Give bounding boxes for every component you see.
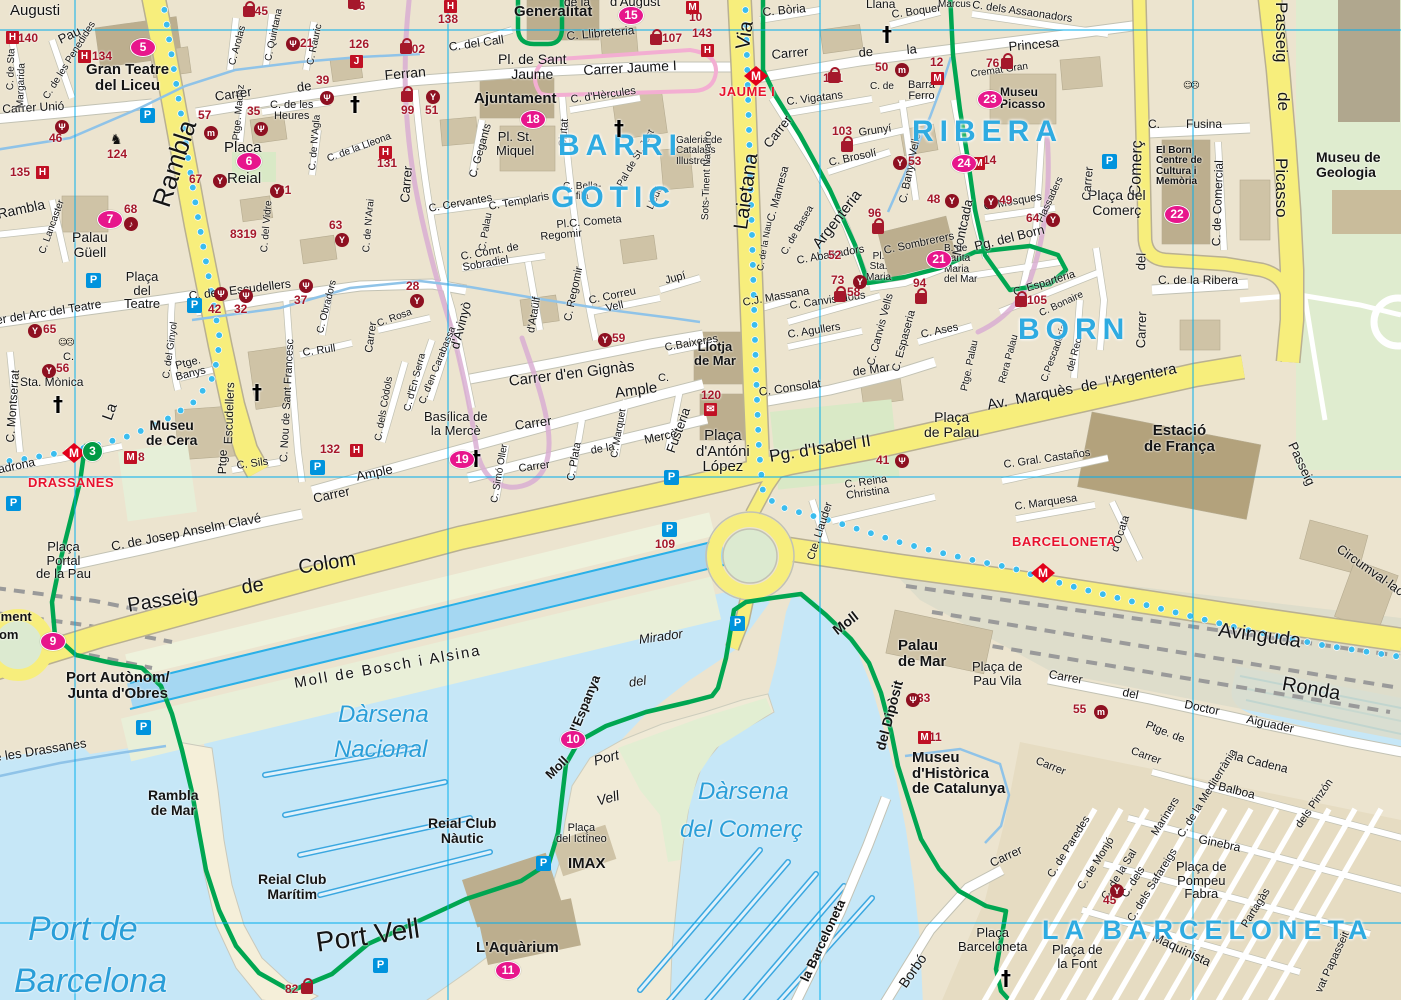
bar-icon: Y bbox=[28, 324, 42, 338]
label-pg-del-born: Pg. del Born bbox=[973, 223, 1046, 253]
label-rambla: Rambla bbox=[148, 117, 201, 211]
label-21: 21 bbox=[300, 37, 313, 49]
shopping-icon bbox=[401, 91, 413, 102]
sight-badge-21: 21 bbox=[926, 250, 952, 269]
sight-badge-15: 15 bbox=[618, 6, 644, 25]
label-port-de: Port de bbox=[28, 912, 138, 947]
label-c-dels-assaonadors: C. dels Assaonadors bbox=[971, 0, 1073, 25]
restaurant-icon: Ψ bbox=[906, 693, 920, 707]
label-67: 67 bbox=[189, 173, 202, 185]
label-de-les-drassanes: de les Drassanes bbox=[0, 736, 87, 765]
label-c-del-vidre: C. del Vidre bbox=[260, 200, 275, 253]
label-76: 76 bbox=[986, 57, 999, 69]
label-c-del-call: C. del Call bbox=[448, 33, 505, 53]
label-de: de bbox=[240, 575, 265, 599]
label-126: 126 bbox=[349, 38, 369, 50]
label-107: 107 bbox=[662, 32, 682, 44]
label-c-de: C. de bbox=[870, 82, 894, 92]
label-120: 120 bbox=[701, 389, 721, 401]
label-c-plata: C. Plata bbox=[566, 441, 584, 482]
label-la: la bbox=[906, 42, 917, 56]
label-rambla: Rambla bbox=[0, 197, 46, 221]
label-63: 63 bbox=[329, 219, 342, 231]
label-49: 49 bbox=[999, 194, 1012, 206]
map-canvas[interactable]: AugustiPauGran Teatre del LiceuCarrer Un… bbox=[0, 0, 1401, 1000]
label-colom: Colom bbox=[0, 628, 18, 642]
parking-icon: P bbox=[662, 522, 677, 537]
label-37: 37 bbox=[294, 294, 307, 306]
fgc-icon: m bbox=[895, 63, 909, 77]
label-c-d'hèrcules: C. d'Hèrcules bbox=[570, 86, 637, 106]
music-venue-icon: ♪ bbox=[124, 217, 138, 231]
label-c-templaris: C. Templaris bbox=[488, 191, 550, 213]
hotel-icon: H bbox=[36, 166, 49, 179]
label-42: 42 bbox=[208, 303, 221, 315]
label-reial-club-nàutic: Reial Club Nàutic bbox=[428, 816, 496, 845]
church-icon: † bbox=[614, 118, 624, 138]
shopping-icon bbox=[872, 223, 884, 234]
restaurant-icon: Ψ bbox=[55, 120, 69, 134]
label-museu-de-cera: Museu de Cera bbox=[146, 418, 197, 447]
label-avinguda: Avinguda bbox=[1217, 620, 1302, 652]
label-sta-mònica: Sta. Mònica bbox=[20, 376, 83, 388]
label-pl-sta-maria: Pl. Sta. Maria bbox=[866, 252, 891, 283]
shopping-icon bbox=[1015, 296, 1027, 307]
label-el-born-centre-de-cultura-i-memòria: El Born Centre de Cultura i Memòria bbox=[1156, 146, 1202, 188]
label-82: 82 bbox=[285, 983, 298, 995]
label-reial: Reial bbox=[227, 171, 261, 187]
label-picasso: Picasso bbox=[1272, 158, 1290, 218]
label-c-nou-de-sant-francesc: C. Nou de Sant Francesc bbox=[279, 339, 297, 463]
label-plaça-de-la-font: Plaça de la Font bbox=[1052, 943, 1103, 970]
label-passeig: Passeig bbox=[1272, 2, 1290, 62]
label-vell: Vell bbox=[595, 788, 621, 808]
label-c-arolas: C. Arolas bbox=[228, 25, 249, 67]
label-carrer: Carrer bbox=[761, 113, 794, 150]
label-grunyí: Grunyí bbox=[858, 123, 892, 139]
label-32: 32 bbox=[234, 303, 247, 315]
label-c-de-les-heures: C. de les Heures bbox=[270, 100, 313, 123]
label-carrer: Carrer bbox=[988, 844, 1024, 870]
label-64: 64 bbox=[1026, 212, 1039, 224]
label-135: 135 bbox=[10, 166, 30, 178]
sight-badge-3: 3 bbox=[82, 441, 103, 462]
label-ginebra: Ginebra bbox=[1197, 833, 1241, 854]
label-c-llibreteria: C. Llibreteria bbox=[566, 24, 635, 42]
label-jupí: Jupí bbox=[664, 271, 687, 287]
label-c-de-n'agla: C. de N'Agla bbox=[308, 114, 323, 171]
sight-badge-7: 7 bbox=[97, 210, 123, 229]
bar-icon: Y bbox=[598, 333, 612, 347]
label-de: de bbox=[296, 79, 312, 94]
label-c-vigatans: C. Vigatans bbox=[786, 90, 844, 108]
label-ptge-palau: Ptge. Palau bbox=[960, 339, 981, 392]
label-c-regomir: C. Regomir bbox=[563, 266, 586, 323]
label-c-comt-de-sobradiel: C. Comt. de Sobradiel bbox=[460, 242, 522, 275]
bar-icon: Y bbox=[1046, 213, 1060, 227]
label-via: Via bbox=[733, 20, 758, 51]
hotel-icon: H bbox=[379, 146, 392, 159]
label-plaça-de-pompeu-fabra: Plaça de Pompeu Fabra bbox=[1176, 860, 1227, 901]
label-laietana: Laietana bbox=[731, 152, 762, 231]
label-c-rull: C. Rull bbox=[302, 343, 336, 359]
label-c-manresa: C. Manresa bbox=[766, 165, 792, 223]
label-pl-de-sant-jaume: Pl. de Sant Jaume bbox=[498, 52, 567, 81]
church-icon: † bbox=[882, 24, 892, 44]
label-la-cadena: la Cadena bbox=[1233, 750, 1289, 775]
label-plaça-del-teatre: Plaça del Teatre bbox=[124, 270, 160, 311]
label-plaça-de-pau-vila: Plaça de Pau Vila bbox=[972, 660, 1023, 687]
label-c-canvis-vells: C. Canvis Vells bbox=[866, 293, 896, 367]
label-carrer: Carrer bbox=[1080, 166, 1095, 201]
label-jaume-i: JAUME I bbox=[719, 85, 775, 99]
shopping-icon bbox=[301, 983, 313, 994]
label-dàrsena: Dàrsena bbox=[698, 780, 789, 805]
label-doctor: Doctor bbox=[1183, 698, 1220, 718]
parking-icon: P bbox=[136, 720, 151, 735]
label-56: 56 bbox=[56, 362, 69, 374]
label-la-barceloneta: la Barceloneta bbox=[798, 897, 848, 983]
label-palau-g-ell: Palau Güell bbox=[72, 230, 108, 259]
label-augusti: Augusti bbox=[10, 3, 60, 19]
sight-badge-24: 24 bbox=[951, 154, 977, 173]
bar-icon: Y bbox=[945, 194, 959, 208]
label-39: 39 bbox=[316, 74, 329, 86]
label-109: 109 bbox=[655, 538, 675, 550]
hotel-icon: H bbox=[78, 50, 91, 63]
label-c-de-n'arai: C. de N'Arai bbox=[362, 199, 377, 253]
label-princesa: Princesa bbox=[1008, 36, 1060, 54]
label-barcelona: Barcelona bbox=[14, 964, 167, 999]
label-l'aquàrium: L'Aquàrium bbox=[476, 940, 559, 956]
bar-icon: Y bbox=[893, 156, 907, 170]
label-carrer: Carrer bbox=[398, 165, 415, 203]
hostel-icon: J bbox=[350, 55, 363, 68]
label-de: de bbox=[858, 45, 874, 60]
sight-badge-19: 19 bbox=[449, 450, 475, 469]
label-c: C. bbox=[1148, 118, 1160, 130]
label-del: del bbox=[1121, 686, 1139, 702]
parking-icon: P bbox=[730, 616, 745, 631]
label-moll-de-bosch-i-alsina: Moll de Bosch i Alsina bbox=[293, 643, 483, 691]
bar-icon: Y bbox=[213, 174, 227, 188]
metro-entrance-icon: M bbox=[124, 451, 137, 464]
label-plaça-del-comerç: Plaça del Comerç bbox=[1088, 188, 1146, 217]
label-ample: Ample bbox=[614, 380, 658, 401]
label-argenteria: Argenteria bbox=[810, 187, 865, 251]
restaurant-icon: Ψ bbox=[299, 279, 313, 293]
label-c-marquesa: C. Marquesa bbox=[1014, 493, 1078, 513]
label-c-reina-christina: C. Reina Christina bbox=[844, 474, 890, 503]
restaurant-icon: Ψ bbox=[254, 122, 268, 136]
bar-icon: Y bbox=[270, 184, 284, 198]
label-55: 55 bbox=[1073, 703, 1086, 715]
label-la: La bbox=[100, 401, 120, 422]
label-c-de-la-nau: C. de la Nau bbox=[756, 221, 774, 272]
label-8319: 8319 bbox=[230, 228, 257, 240]
label-c-consolat: C. Consolat bbox=[758, 377, 822, 398]
label-regomir: Regomir bbox=[540, 228, 582, 243]
shopping-icon bbox=[400, 43, 412, 54]
label-port: Port bbox=[592, 747, 621, 768]
label-28: 28 bbox=[406, 280, 419, 292]
label-c-agullers: C. Agullers bbox=[787, 322, 841, 342]
label-port-autònom-junta-d'obres: Port Autònom/ Junta d'Obres bbox=[66, 670, 170, 701]
label-c-bòria: C. Bòria bbox=[762, 2, 806, 18]
hotel-icon: H bbox=[444, 0, 457, 13]
label-c-rosa: C. Rosa bbox=[376, 308, 414, 330]
label-carrer-jaume-i: Carrer Jaume I bbox=[583, 58, 677, 77]
label-del-dipòsit: del Dipòsit bbox=[873, 679, 906, 752]
shopping-icon bbox=[915, 293, 927, 304]
label-carrer: Carrer bbox=[312, 484, 351, 505]
heraldic-icon: ♞ bbox=[110, 133, 123, 147]
labels-layer: AugustiPauGran Teatre del LiceuCarrer Un… bbox=[0, 0, 1401, 1000]
parking-icon: P bbox=[86, 273, 101, 288]
restaurant-icon: Ψ bbox=[895, 454, 909, 468]
label-12: 12 bbox=[930, 56, 943, 68]
label-52: 52 bbox=[828, 249, 841, 261]
label-cte-llauder: Cte. Llauder bbox=[806, 501, 835, 562]
label-carrer: Carrer bbox=[514, 414, 552, 433]
label-balboa: Balboa bbox=[1217, 780, 1256, 801]
bar-icon: Y bbox=[853, 275, 867, 289]
bar-icon: Y bbox=[42, 364, 56, 378]
theatre-masks-icon: ☺☹ bbox=[1183, 82, 1198, 91]
theatre-masks-icon: ☺☹ bbox=[58, 339, 73, 348]
label-pl-st-miquel: Pl. St. Miquel bbox=[496, 130, 534, 157]
parking-icon: P bbox=[6, 496, 21, 511]
sight-badge-9: 9 bbox=[40, 632, 66, 651]
parking-icon: P bbox=[310, 460, 325, 475]
sight-badge-22: 22 bbox=[1164, 205, 1190, 224]
fgc-icon: m bbox=[1094, 705, 1108, 719]
label-14: 14 bbox=[983, 154, 996, 166]
label-av-marquès-de-l'argentera: Av. Marquès de l'Argentera bbox=[986, 361, 1178, 413]
label-65: 65 bbox=[43, 323, 56, 335]
label-c-dels-còdols: C. dels Còdols bbox=[374, 376, 396, 442]
bar-icon: Y bbox=[335, 233, 349, 247]
label-c-sils: C. Sils bbox=[236, 457, 269, 473]
label-museu-picasso: Museu Picasso bbox=[1000, 86, 1045, 111]
label-carrer: Carrer bbox=[1134, 311, 1149, 348]
parking-icon: P bbox=[373, 958, 388, 973]
label-carrer: Carrer bbox=[1129, 746, 1162, 767]
label-140: 140 bbox=[18, 32, 38, 44]
label-port-vell: Port Vell bbox=[314, 913, 421, 956]
label-51: 51 bbox=[425, 104, 438, 116]
label-c-obradors: C. Obradors bbox=[316, 279, 339, 334]
label-basílica-de-la-mercè: Basílica de la Mercè bbox=[424, 410, 488, 437]
metro-entrance-icon: M bbox=[931, 72, 944, 85]
label-del-comerç: del Comerç bbox=[680, 818, 803, 843]
label-museu-de-geologia: Museu de Geologia bbox=[1316, 150, 1381, 179]
restaurant-icon: Ψ bbox=[286, 37, 300, 51]
label-c-gegants: C. Gegants bbox=[468, 123, 494, 180]
parking-icon: P bbox=[664, 470, 679, 485]
label-carrer: Carrer bbox=[364, 321, 380, 353]
label-c-de-basea: C. de Basea bbox=[780, 204, 817, 257]
post-office-icon: ✉ bbox=[704, 403, 717, 416]
label-c-gral-casta-os: C. Gral. Castaños bbox=[1003, 448, 1091, 471]
restaurant-icon: Ψ bbox=[320, 91, 334, 105]
label-carrer: Carrer bbox=[214, 85, 252, 104]
label-carrer: Carrer bbox=[1048, 668, 1084, 686]
label-carrer: Carrer bbox=[518, 460, 550, 476]
label-plaça-barceloneta: Plaça Barceloneta bbox=[958, 926, 1027, 953]
label-plaça-portal-de-la-pau: Plaça Portal de la Pau bbox=[36, 540, 91, 581]
label-ribera: RIBERA bbox=[912, 116, 1063, 147]
label-c-de-comercial: C. de Comercial bbox=[1210, 160, 1225, 246]
label-reial-club-marítim: Reial Club Marítim bbox=[258, 872, 326, 901]
label-circumval-lació: Circumval·lació bbox=[1334, 542, 1401, 604]
label-57: 57 bbox=[198, 109, 211, 121]
label-palau-de-mar: Palau de Mar bbox=[898, 638, 946, 669]
bar-icon: Y bbox=[984, 195, 998, 209]
label-c-correu-vell: C. Correu Vell bbox=[588, 286, 639, 318]
label-drassanes: DRASSANES bbox=[28, 476, 114, 490]
shopping-icon bbox=[650, 34, 662, 45]
label-c-espaseria: C. Espaseria bbox=[891, 309, 918, 373]
label-carrer: Carrer bbox=[1034, 756, 1067, 778]
parking-icon: P bbox=[536, 856, 551, 871]
label-138: 138 bbox=[438, 13, 458, 25]
fgc-icon: m bbox=[204, 126, 218, 140]
label-68: 68 bbox=[124, 203, 137, 215]
label-sots-tinent-navarro: Sots-Tinent Navarro bbox=[701, 131, 714, 220]
restaurant-icon: Ψ bbox=[239, 289, 253, 303]
label-124: 124 bbox=[107, 148, 127, 160]
sight-badge-11: 11 bbox=[495, 961, 521, 980]
label-marcus: Marcus bbox=[938, 0, 971, 10]
label-dàrsena: Dàrsena bbox=[338, 703, 429, 728]
label-134: 134 bbox=[92, 50, 112, 62]
label-c-brosolí: C. Brosolí bbox=[828, 148, 878, 169]
sight-badge-23: 23 bbox=[977, 90, 1003, 109]
label-99: 99 bbox=[401, 104, 414, 116]
church-icon: † bbox=[350, 94, 360, 114]
label-ajuntament: Ajuntament bbox=[474, 91, 557, 107]
church-icon: † bbox=[53, 394, 63, 414]
label-de: de bbox=[1274, 92, 1292, 111]
parking-icon: P bbox=[187, 298, 202, 313]
label-monument: Monument bbox=[0, 610, 32, 624]
label-c-montserrat: C. Montserrat bbox=[4, 369, 22, 442]
label-llotja-de-mar: Llotja de Mar bbox=[694, 340, 736, 367]
label-museu-d'històrica-de-catalunya: Museu d'Històrica de Catalunya bbox=[912, 750, 1005, 797]
label-c-de-josep-anselm-clavé: C. de Josep Anselm Clavé bbox=[110, 511, 262, 553]
label-fusina: Fusina bbox=[1186, 118, 1222, 130]
label-d'ata-lf: d'Ataülf bbox=[526, 296, 544, 334]
label-aiguader: Aiguader bbox=[1245, 713, 1295, 735]
label-132: 132 bbox=[320, 443, 340, 455]
label-gran-teatre-del-liceu: Gran Teatre del Liceu bbox=[86, 62, 169, 93]
metro-entrance-icon: M bbox=[686, 1, 699, 14]
label-c: C. bbox=[658, 373, 669, 384]
parking-icon: P bbox=[140, 108, 155, 123]
metro-entrance-icon: M bbox=[918, 731, 931, 744]
label-53: 53 bbox=[908, 155, 921, 167]
hotel-icon: H bbox=[350, 444, 363, 457]
label-borbó: Borbó bbox=[896, 951, 929, 990]
label-colom: Colom bbox=[297, 549, 357, 579]
sight-badge-10: 10 bbox=[560, 730, 586, 749]
label-la-barceloneta: LA BARCELONETA bbox=[1042, 916, 1373, 944]
metro-logo-icon: M bbox=[744, 66, 768, 86]
sight-badge-6: 6 bbox=[236, 152, 262, 171]
label-c-boquer: C. Boquer bbox=[891, 3, 942, 21]
hotel-icon: H bbox=[6, 31, 19, 44]
label-143: 143 bbox=[692, 27, 712, 39]
label-c-simó-oller: C. Simó Oller bbox=[490, 443, 511, 503]
label-gotic: GOTIC bbox=[551, 182, 676, 213]
label-margarida: Margarida bbox=[16, 63, 28, 108]
label-del: del bbox=[628, 674, 647, 690]
label-estació-de-frança: Estació de França bbox=[1144, 423, 1215, 454]
bar-icon: Y bbox=[1110, 884, 1124, 898]
restaurant-icon: Ψ bbox=[214, 287, 228, 301]
label-nacional: Nacional bbox=[334, 738, 427, 763]
label-ferran: Ferran bbox=[384, 64, 426, 82]
bar-icon: Y bbox=[426, 90, 440, 104]
label-de-la: de la bbox=[564, 0, 590, 8]
label-passeig: Passeig bbox=[126, 585, 200, 617]
label-plaça-del-ictíneo: Plaça del Ictíneo bbox=[556, 823, 607, 846]
label-ptge-banys: Ptge. Banys bbox=[172, 355, 207, 385]
label-41: 41 bbox=[876, 454, 889, 466]
shopping-icon bbox=[1001, 58, 1013, 69]
label-48: 48 bbox=[927, 193, 940, 205]
label-c-ases: C. Ases bbox=[920, 322, 959, 341]
church-icon: † bbox=[1001, 968, 1011, 988]
label-carrer: Carrer bbox=[771, 45, 809, 62]
sight-badge-18: 18 bbox=[520, 110, 546, 129]
label-ptge: Ptge bbox=[216, 449, 229, 474]
church-icon: † bbox=[252, 382, 262, 402]
shopping-icon bbox=[348, 0, 360, 9]
parking-icon: P bbox=[1102, 154, 1117, 169]
label-8: 8 bbox=[138, 451, 145, 463]
label-imax: IMAX bbox=[568, 856, 606, 872]
label-mirador: Mirador bbox=[638, 627, 684, 647]
label-ronda: Ronda bbox=[1280, 674, 1342, 705]
label-dels-pinzón: dels Pinzón bbox=[1294, 777, 1336, 830]
label-d'espanya: d'Espanya bbox=[566, 673, 603, 738]
label-105: 105 bbox=[1027, 294, 1047, 306]
label-35: 35 bbox=[247, 105, 260, 117]
shopping-icon bbox=[243, 6, 255, 17]
label-plaça-d'antóni-lópez: Plaça d'Antóni López bbox=[696, 428, 750, 475]
label-passeig: Passeig bbox=[1286, 440, 1318, 488]
label-carrer-unió: Carrer Unió bbox=[2, 100, 65, 116]
label-c-de-la-ribera: C. de la Ribera bbox=[1158, 274, 1238, 286]
label-moll: Moll bbox=[830, 609, 861, 638]
label-barceloneta: BARCELONETA bbox=[1012, 535, 1116, 549]
shopping-icon bbox=[834, 291, 846, 302]
label-rambla-de-mar: Rambla de Mar bbox=[148, 788, 199, 817]
bar-icon: Y bbox=[410, 294, 424, 308]
label-del: del bbox=[1134, 253, 1148, 271]
shopping-icon bbox=[841, 141, 853, 152]
label-ample: Ample bbox=[355, 462, 394, 483]
label-ptge-de: Ptge. de bbox=[1144, 720, 1186, 746]
label-pg-d'isabel-ii: Pg. d'Isabel II bbox=[768, 432, 872, 465]
label-born: BORN bbox=[1018, 314, 1130, 345]
shopping-icon bbox=[828, 72, 840, 83]
label-plaça-de-palau: Plaça de Palau bbox=[924, 410, 979, 439]
sight-badge-5: 5 bbox=[130, 38, 156, 57]
label-59: 59 bbox=[612, 332, 625, 344]
